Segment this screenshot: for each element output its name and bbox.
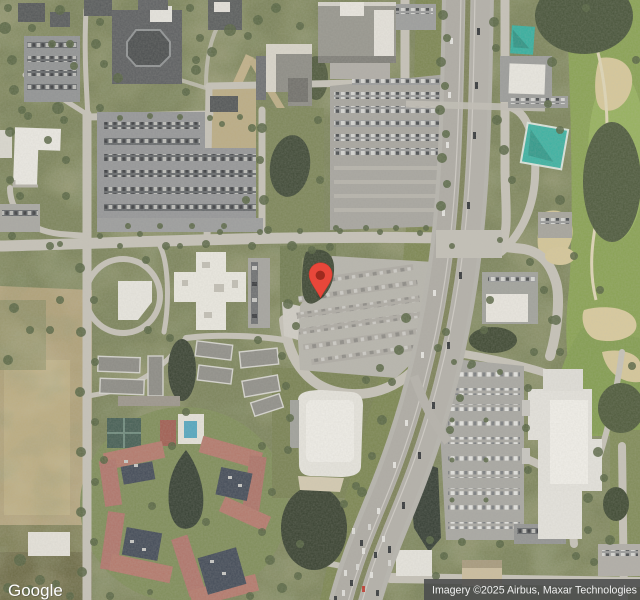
svg-text:Google: Google — [8, 581, 63, 600]
svg-text:Imagery ©2025 Airbus, Maxar Te: Imagery ©2025 Airbus, Maxar Technologies — [432, 585, 637, 597]
